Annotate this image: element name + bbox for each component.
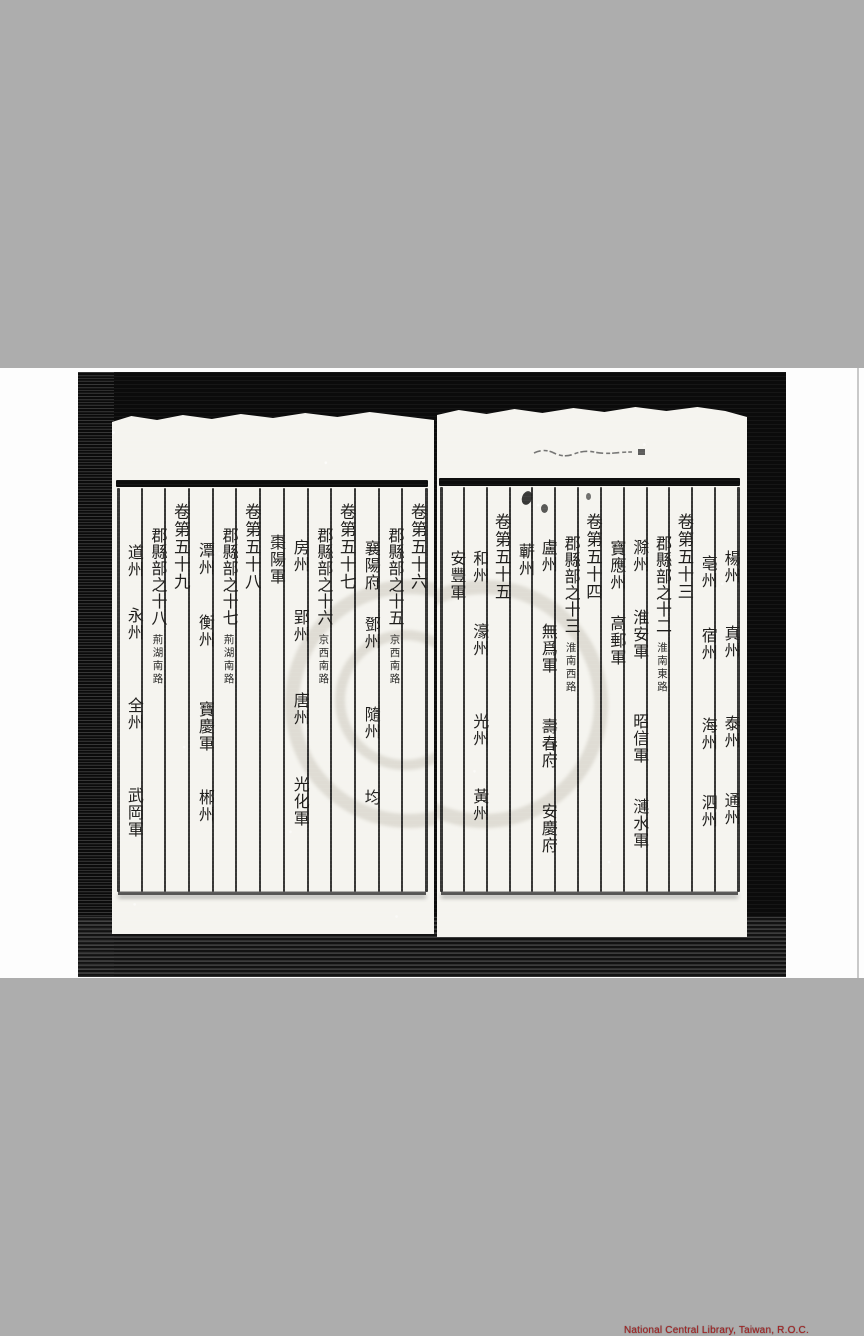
place-name: 郢州 [285,609,307,643]
place-name: 均 [356,789,378,806]
place-name: 楊州 [716,550,738,584]
place-name: 盧州 [533,539,555,573]
ink-smudge [586,493,591,500]
place-name: 安慶府 [533,803,555,854]
place-name: 道州 [119,544,141,578]
place-name: 黃州 [464,788,486,822]
section-heading: 郡縣部之十二 [647,535,669,634]
route-annotation: 淮南東路 [650,642,666,694]
library-watermark-text: National Central Library, Taiwan, R.O.C. [624,1325,809,1336]
column-divider-line [737,487,740,892]
section-heading: 郡縣部之十七 [214,527,236,626]
volume-heading: 卷第五十七 [332,503,354,591]
place-name: 光化軍 [285,776,307,827]
section-heading: 郡縣部之十八 [143,527,165,626]
place-name: 襄陽府 [356,540,378,591]
place-name: 唐州 [285,692,307,726]
route-annotation: 京西南路 [382,634,398,686]
volume-heading: 卷第五十八 [237,503,259,591]
right-page: 楊州真州泰州通州亳州宿州海州泗州卷第五十三郡縣部之十二淮南東路滁州淮安軍昭信軍漣… [437,405,747,937]
scan-noise-left [78,372,114,977]
place-name: 高郵軍 [601,615,623,666]
frame-top-rule [116,480,428,487]
route-annotation: 淮南西路 [559,642,575,694]
place-name: 郴州 [190,789,212,823]
ink-smudge [541,504,548,513]
place-name: 光州 [464,713,486,747]
place-name: 淮安軍 [624,609,646,660]
place-name: 泰州 [716,715,738,749]
place-name: 隨州 [356,706,378,740]
place-name: 全州 [119,697,141,731]
place-name: 和州 [464,550,486,584]
section-heading: 郡縣部之十五 [379,527,401,626]
place-name: 泗州 [693,794,715,828]
viewer-panel: 卷第五十六郡縣部之十五京西南路襄陽府鄧州隨州均卷第五十七郡縣部之十六京西南路房州… [0,368,864,978]
place-name: 漣水軍 [624,798,646,849]
place-name: 寶慶軍 [190,701,212,752]
place-name: 滁州 [624,539,646,573]
place-name: 濠州 [464,623,486,657]
book-scan-image[interactable]: 卷第五十六郡縣部之十五京西南路襄陽府鄧州隨州均卷第五十七郡縣部之十六京西南路房州… [78,372,786,977]
volume-heading: 卷第五十五 [487,513,509,601]
place-name: 海州 [693,717,715,751]
place-name: 蘄州 [510,543,532,577]
place-name: 壽春府 [533,718,555,769]
place-name: 武岡軍 [119,787,141,838]
route-annotation: 京西南路 [311,634,327,686]
place-name: 鄧州 [356,616,378,650]
place-name: 棗陽軍 [261,534,283,585]
place-name: 寶應州 [601,540,623,591]
place-name: 房州 [285,539,307,573]
panel-edge-divider [857,368,859,978]
place-name: 安豐軍 [441,550,463,601]
left-page: 卷第五十六郡縣部之十五京西南路襄陽府鄧州隨州均卷第五十七郡縣部之十六京西南路房州… [112,410,434,934]
place-name: 宿州 [693,627,715,661]
place-name: 衡州 [190,614,212,648]
route-annotation: 荊湖南路 [217,634,233,686]
volume-heading: 卷第五十三 [670,513,692,601]
column-divider-line [463,487,465,892]
column-divider-line [440,487,443,892]
frame-bottom-rule [118,892,426,895]
volume-heading: 卷第五十六 [403,503,425,591]
place-name: 真州 [716,625,738,659]
frame-bottom-rule [441,892,738,895]
place-name: 亳州 [693,555,715,589]
pencil-scribble [532,445,652,459]
volume-heading: 卷第五十四 [579,513,601,601]
column-divider-line [714,487,716,892]
frame-top-rule [439,478,740,486]
place-name: 通州 [716,792,738,826]
volume-heading: 卷第五十九 [166,503,188,591]
place-name: 永州 [119,607,141,641]
place-name: 無爲軍 [533,623,555,674]
route-annotation: 荊湖南路 [146,634,162,686]
place-name: 潭州 [190,542,212,576]
place-name: 昭信軍 [624,713,646,764]
section-heading: 郡縣部之十六 [308,527,330,626]
section-heading: 郡縣部之十三 [556,535,578,634]
